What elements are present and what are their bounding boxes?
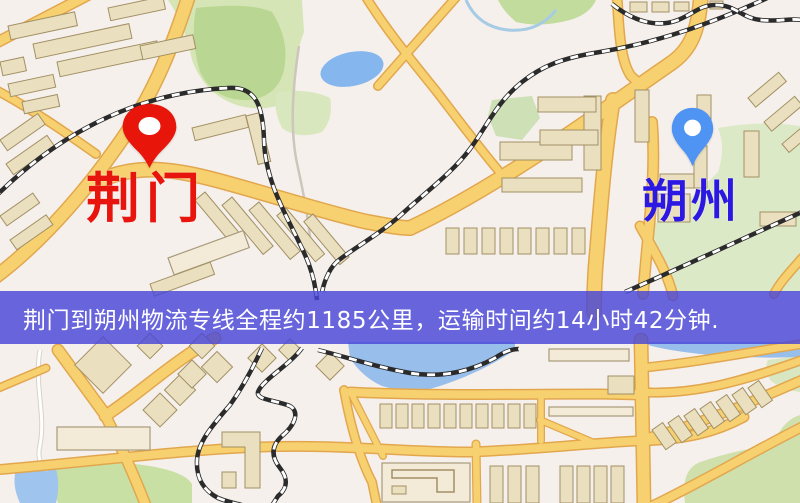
map-view[interactable]: 荆门 朔州 荆门到朔州物流专线全程约1185公里，运输时间约14小时42分钟. bbox=[0, 0, 800, 503]
info-banner: 荆门到朔州物流专线全程约1185公里，运输时间约14小时42分钟. bbox=[0, 291, 800, 344]
map-canvas[interactable] bbox=[0, 0, 800, 503]
origin-pin-icon[interactable] bbox=[119, 102, 180, 170]
destination-pin-icon[interactable] bbox=[669, 106, 716, 168]
banner-text: 荆门到朔州物流专线全程约1185公里，运输时间约14小时42分钟. bbox=[23, 301, 719, 335]
destination-label: 朔州 bbox=[642, 178, 740, 224]
origin-label: 荆门 bbox=[86, 172, 206, 226]
